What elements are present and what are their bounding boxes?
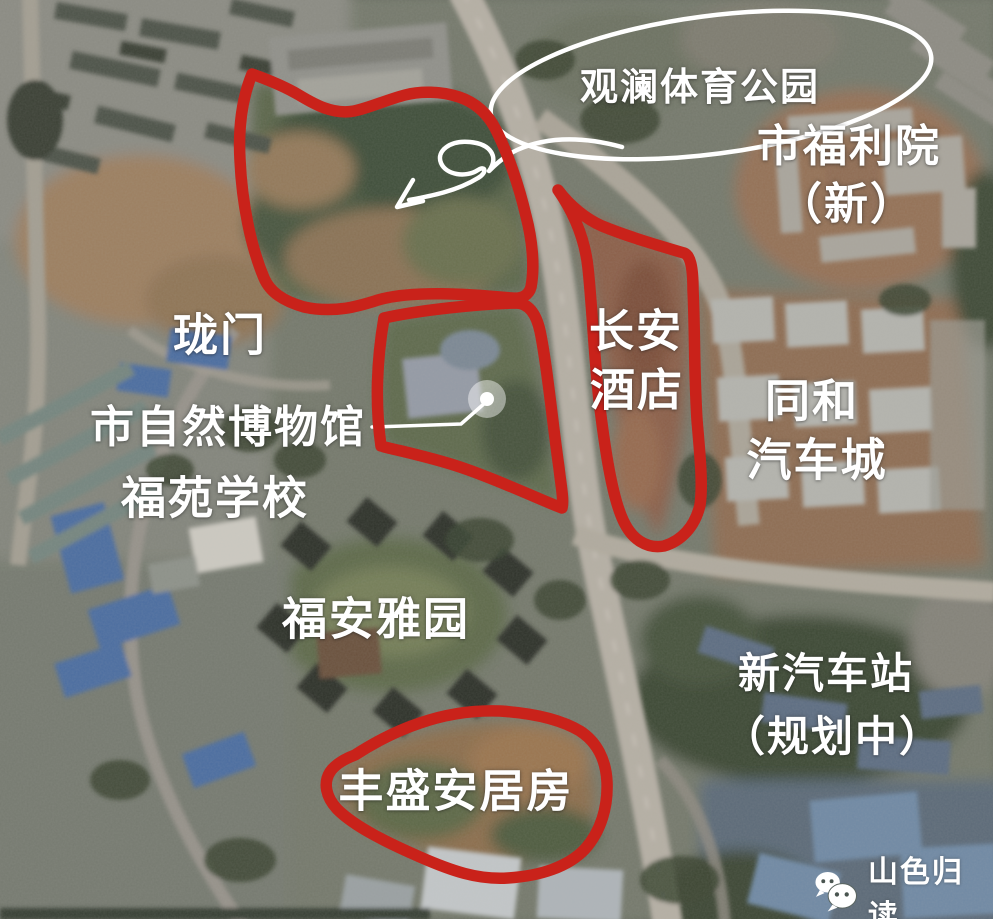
label-natural-history-museum: 市自然博物馆 [90,406,366,450]
label-changan-hotel-line1: 长安 [589,309,683,354]
label-fuyuan-school: 福苑学校 [121,476,309,521]
label-tonghe-auto-city-line2: 汽车城 [746,438,887,483]
label-welfare-institute: 市福利院 [757,125,941,169]
label-tonghe-auto-city-line1: 同和 [765,379,859,424]
annotated-satellite-map: 观澜体育公园 市福利院 （新） 珑门 市自然博物馆 福苑学校 长安 酒店 同和 … [0,0,993,919]
label-guanlan-sports-park: 观澜体育公园 [580,69,820,107]
museum-marker-dot [480,392,494,406]
label-changan-hotel-line2: 酒店 [590,368,684,413]
label-new-bus-station-planning: （规划中） [723,716,943,758]
watermark: 山色归读 [814,847,993,919]
label-fengsheng-housing: 丰盛安居房 [338,769,573,814]
wechat-icon [814,869,859,913]
label-welfare-institute-new: （新） [778,183,916,227]
label-new-bus-station: 新汽车站 [738,653,914,695]
label-fuan-yayuan: 福安雅园 [282,597,470,642]
label-longmen: 珑门 [173,313,267,358]
watermark-text: 山色归读 [868,847,993,919]
